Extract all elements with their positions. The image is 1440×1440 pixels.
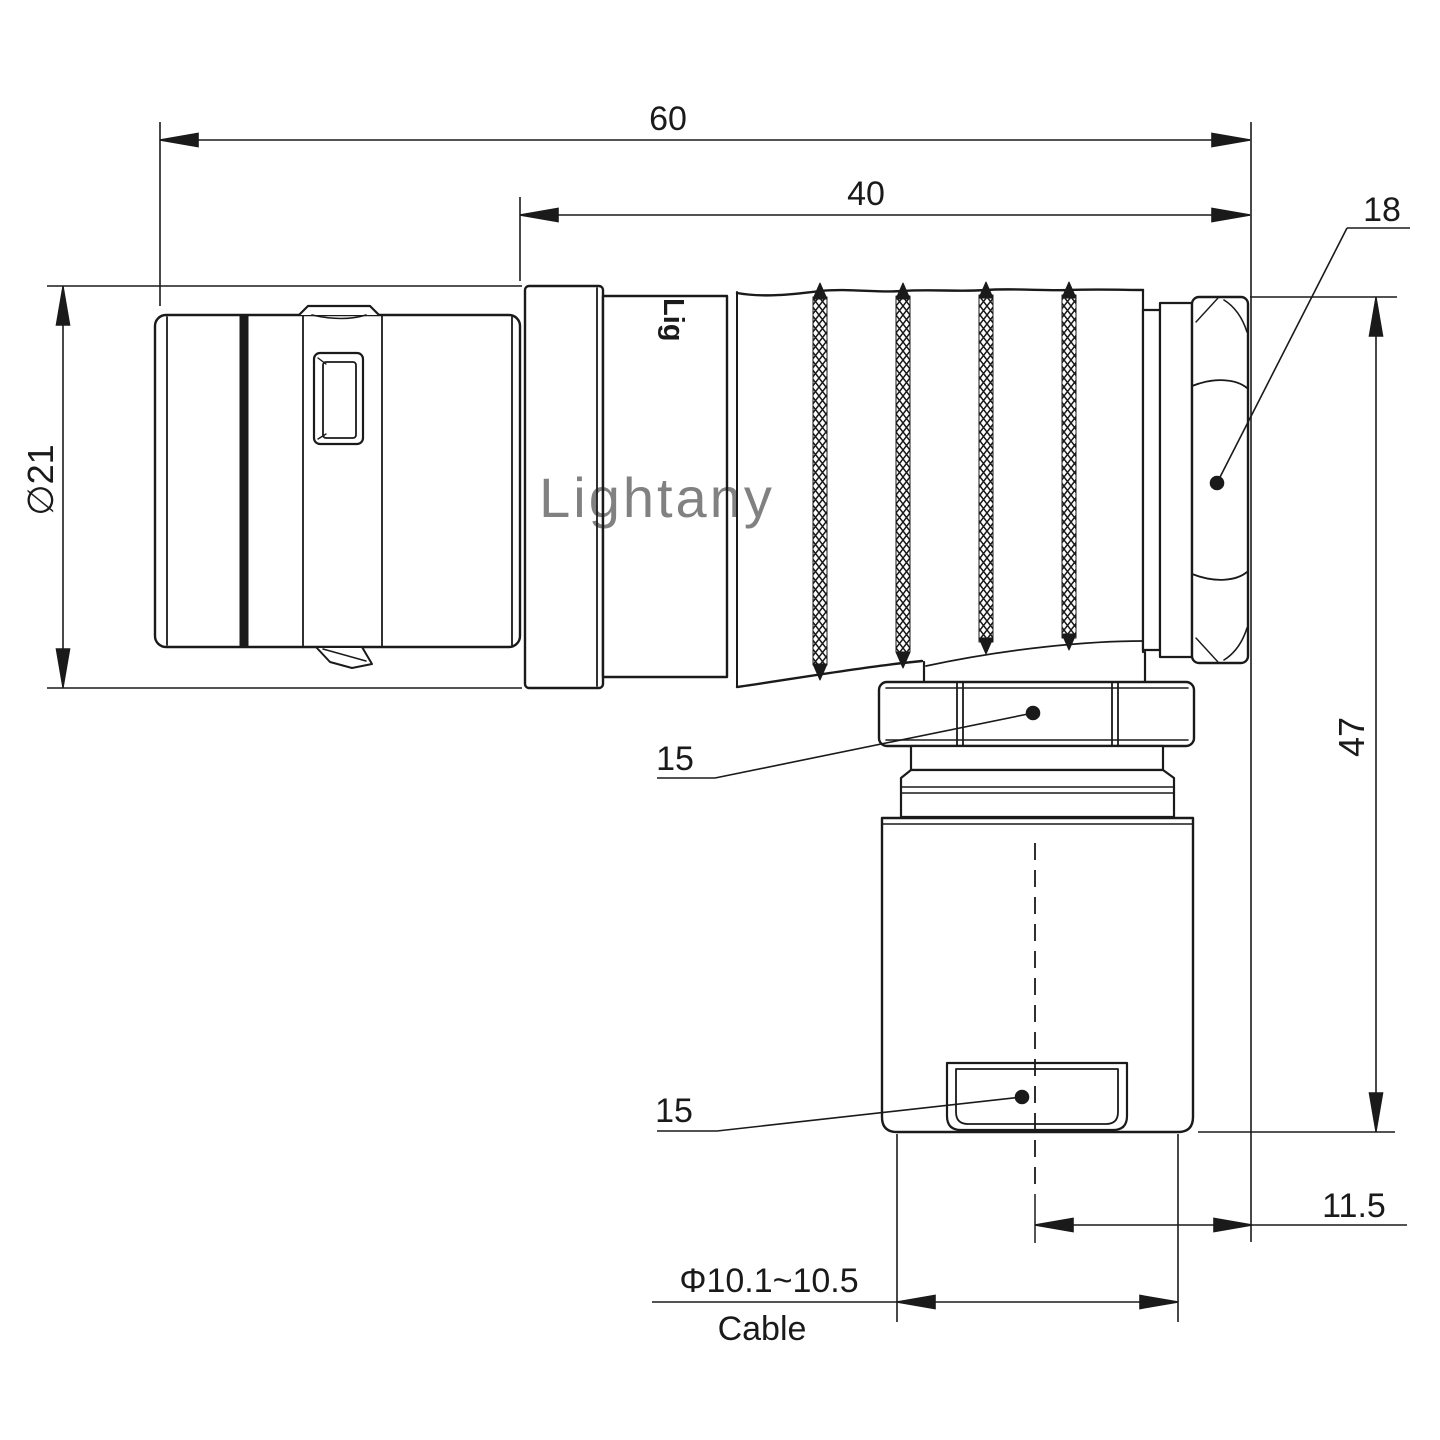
arrowhead (1212, 134, 1250, 147)
arrowhead (1212, 209, 1250, 222)
technical-drawing-page: 60 40 18 ∅21 47 15 15 11.5 Φ10.1~10.5 Ca… (0, 0, 1440, 1440)
dim-cable-dia-label: Φ10.1~10.5 (679, 1262, 858, 1300)
connector-side-view (155, 282, 1248, 1132)
leader-dot (1027, 707, 1040, 720)
dim-11-5-label: 11.5 (1322, 1187, 1386, 1225)
dim-47-label: 47 (1331, 717, 1372, 757)
dim-40-label: 40 (847, 175, 885, 213)
vertical-tube (882, 818, 1193, 1132)
sleeve-key-tab (299, 306, 379, 315)
arrowhead (1370, 298, 1383, 336)
arrowhead (57, 649, 70, 687)
arrowhead (897, 1296, 935, 1309)
cable-clamp-window (947, 1063, 1127, 1130)
dim-cable-word-label: Cable (718, 1310, 807, 1348)
dim-60-label: 60 (649, 100, 687, 138)
dimension-40 (520, 197, 1250, 281)
dim-15-elbow-label: 15 (656, 740, 694, 778)
dim-phi21-label: ∅21 (20, 444, 61, 515)
end-cap (1143, 310, 1160, 650)
end-ring (1160, 303, 1192, 657)
arrowhead (1214, 1219, 1252, 1232)
arrowhead (520, 209, 558, 222)
part-logo-text: Lig (657, 298, 689, 342)
arrowhead (160, 134, 198, 147)
technical-drawing-canvas: 60 40 18 ∅21 47 15 15 11.5 Φ10.1~10.5 Ca… (0, 0, 1440, 1440)
release-wedge (316, 647, 372, 668)
rear-end (1143, 297, 1248, 663)
watermark-text: Lightany (539, 466, 775, 529)
latch-window (314, 353, 363, 444)
arrowhead (1370, 1093, 1383, 1131)
elbow-stack (879, 682, 1194, 817)
arrowhead (57, 287, 70, 325)
leader-dot (1211, 477, 1224, 490)
knurl-bands (813, 282, 1076, 680)
strain-relief (737, 289, 1145, 687)
elbow-ring-b (901, 770, 1174, 817)
front-release-sleeve (155, 306, 520, 668)
dim-18-label: 18 (1363, 191, 1401, 229)
knurl-band-2 (896, 283, 910, 668)
knurl-band-1 (813, 283, 827, 680)
dim-15-clamp-label: 15 (655, 1092, 693, 1130)
leader-dot (1016, 1091, 1029, 1104)
knurl-band-3 (979, 282, 993, 654)
elbow-shell-curve (926, 641, 1143, 666)
elbow-ring-a (911, 746, 1163, 770)
arrowhead (1035, 1219, 1073, 1232)
knurl-band-4 (1062, 282, 1076, 650)
arrowhead (1140, 1296, 1178, 1309)
